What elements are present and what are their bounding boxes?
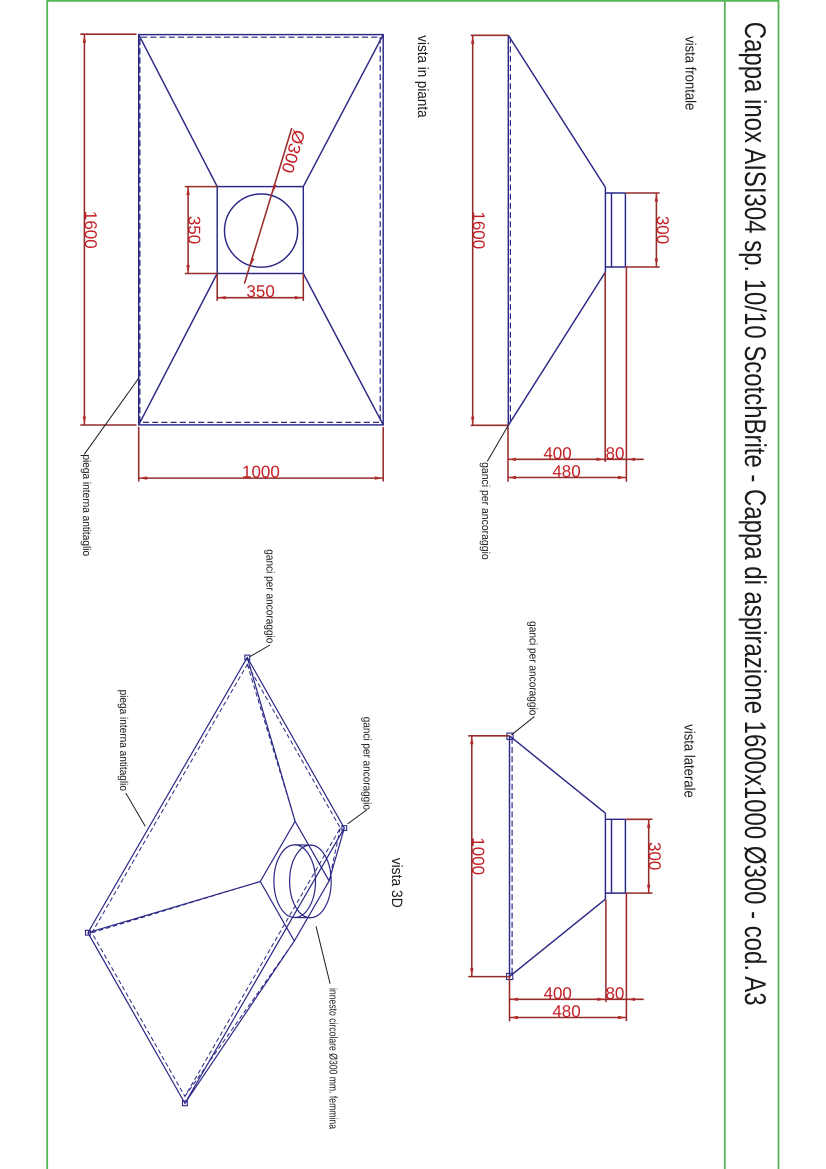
svg-text:300: 300 <box>645 842 664 870</box>
svg-text:ganci per ancoraggio: ganci per ancoraggio <box>264 549 276 643</box>
svg-text:480: 480 <box>552 462 580 481</box>
svg-text:ganci per ancoraggio: ganci per ancoraggio <box>360 717 372 810</box>
svg-text:piega interna antitaglio: piega interna antitaglio <box>80 454 92 556</box>
svg-text:1600: 1600 <box>81 211 100 249</box>
svg-text:350: 350 <box>246 282 274 301</box>
svg-text:80: 80 <box>605 984 624 1003</box>
svg-text:vista 3D: vista 3D <box>388 858 405 908</box>
svg-text:ganci per ancoraggio: ganci per ancoraggio <box>479 462 491 560</box>
svg-text:Ø300: Ø300 <box>278 128 309 176</box>
svg-text:480: 480 <box>552 1002 580 1021</box>
svg-text:350: 350 <box>185 216 204 244</box>
svg-text:400: 400 <box>544 984 572 1003</box>
svg-text:1600: 1600 <box>469 211 488 249</box>
svg-text:1000: 1000 <box>468 837 487 875</box>
svg-text:Cappa inox AISI304 sp. 10/10 S: Cappa inox AISI304 sp. 10/10 ScotchBrite… <box>738 22 771 1006</box>
svg-text:1000: 1000 <box>242 463 280 482</box>
svg-text:vista laterale: vista laterale <box>681 724 698 798</box>
svg-text:400: 400 <box>543 444 571 463</box>
svg-text:300: 300 <box>653 216 672 244</box>
svg-text:80: 80 <box>606 444 625 463</box>
svg-text:ganci per ancoraggio: ganci per ancoraggio <box>527 621 539 715</box>
svg-text:piega interna antitaglio: piega interna antitaglio <box>117 690 129 791</box>
svg-text:vista frontale: vista frontale <box>682 36 699 110</box>
svg-text:innesto circolare Ø300 mm. fem: innesto circolare Ø300 mm. femmina <box>326 988 338 1130</box>
svg-text:vista in pianta: vista in pianta <box>414 35 431 118</box>
